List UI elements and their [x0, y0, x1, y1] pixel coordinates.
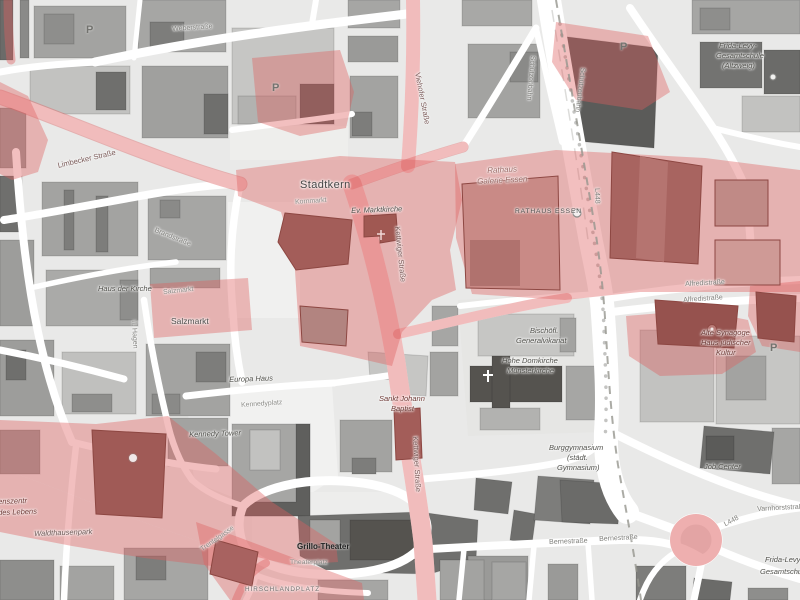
- map-label-weberstrasse: Weberstraße: [172, 23, 213, 33]
- map-label-marktkirche: Ev. Marktkirche: [351, 205, 402, 214]
- map-label-clipped-poi-2: des Lebens: [0, 508, 37, 517]
- map-label-frida-levy-1: Frida-Levy-: [719, 42, 757, 50]
- map-label-frida-levy-3: (Altzweig): [722, 62, 755, 70]
- map-label-synagoge-3: Kultur: [716, 349, 736, 357]
- parking-icon: P: [770, 342, 777, 354]
- map-label-kennedyplatz: Kennedyplatz: [241, 400, 283, 410]
- map-label-muensterkirche-2: Münsterkirche: [507, 367, 554, 375]
- map-label-synagoge-2: Haus jüdischer: [701, 339, 751, 347]
- map-label-frida-levy-2: Gesamtschule: [716, 52, 764, 60]
- map-label-varnhorststrasse: Varnhorststraße: [757, 503, 800, 513]
- map-label-burggymnasium-2: (städt.: [567, 454, 588, 462]
- map-label-burggymnasium-3: Gymnasium): [557, 464, 600, 472]
- map-label-frida-levy-4: Frida-Levy: [765, 556, 800, 564]
- parking-icon: P: [620, 41, 627, 53]
- map-label-haus-der-kirche: Haus der Kirche: [98, 285, 152, 293]
- map-label-generalvikariat-2: Generalvikariat: [516, 337, 566, 345]
- map-label-europa-haus: Europa Haus: [229, 374, 273, 383]
- map-label-theaterplatz: Theaterplatz: [290, 560, 328, 567]
- map-label-frida-levy-5: Gesamtschule: [760, 568, 800, 576]
- map-label-synagoge-1: Alte Synagoge: [701, 329, 750, 337]
- map-label-limbecker-strasse: Limbecker Straße: [57, 149, 116, 170]
- map-label-salzmarkt-1: Salzmarkt: [163, 287, 194, 297]
- map-label-schuetzenbahn-1: Schützenbahn: [525, 55, 536, 100]
- map-label-kornmarkt: Kornmarkt: [295, 198, 327, 207]
- parking-icon: P: [272, 82, 279, 94]
- map-label-stadtkern: Stadtkern: [300, 180, 351, 191]
- map-label-generalvikariat-1: Bischöfl.: [530, 327, 558, 335]
- map-label-hirschlandplatz: HIRSCHLANDPLATZ: [245, 587, 320, 593]
- parking-icon: P: [86, 24, 93, 36]
- map-label-l448-1: L448: [593, 188, 601, 204]
- map-label-alfredistrasse-1: Alfredistraße: [685, 279, 725, 288]
- map-label-viehofer-strasse: Viehofer Straße: [414, 72, 431, 125]
- map-label-kettwiger-2: Kettwiger Straße: [412, 436, 422, 492]
- map-label-salzmarkt-2: Salzmarkt: [171, 317, 209, 326]
- map-label-kennedy-tower: Kennedy Tower: [189, 429, 241, 438]
- map-label-kettwiger-1: Kettwiger Straße: [394, 226, 407, 282]
- map-label-trentelgasse: Trentelgasse: [200, 526, 236, 554]
- map-label-alfredistrasse-2: Alfredistraße: [683, 294, 723, 304]
- map-label-schuetzenbahn-2: Schützenbahn: [574, 67, 586, 112]
- map-label-rathaus-galerie-2: Galerie Essen: [477, 175, 528, 186]
- map-label-rathaus-galerie-1: Rathaus: [487, 165, 517, 175]
- map-label-waldthausenpark: Waldthausenpark: [34, 528, 92, 538]
- map-label-grillo-theater: Grillo-Theater: [297, 543, 349, 551]
- map-label-bernestrasse-2: Bernestraße: [599, 534, 638, 543]
- map-label-job-center: Job Center: [704, 463, 741, 471]
- map-viewport[interactable]: Stadtkern Kornmarkt Ev. Marktkirche Kett…: [0, 0, 800, 600]
- map-label-l448-2: L448: [723, 515, 740, 528]
- map-label-ii-hagen: II. Hagen: [130, 320, 138, 349]
- map-label-brandstrasse: Brandstraße: [153, 227, 191, 248]
- map-label-muensterkirche-1: Hohe Domkirche: [502, 357, 558, 365]
- map-label-clipped-poi-1: enszentr: [0, 497, 27, 505]
- map-labels-layer: Stadtkern Kornmarkt Ev. Marktkirche Kett…: [0, 0, 800, 600]
- map-label-sankt-johann-2: Baptist: [391, 405, 414, 413]
- map-label-rathaus-essen: RATHAUS ESSEN: [515, 209, 582, 216]
- map-label-sankt-johann-1: Sankt Johann: [379, 395, 425, 403]
- map-label-bernestrasse-1: Bernestraße: [549, 538, 588, 546]
- map-label-burggymnasium-1: Burggymnasium: [549, 444, 603, 452]
